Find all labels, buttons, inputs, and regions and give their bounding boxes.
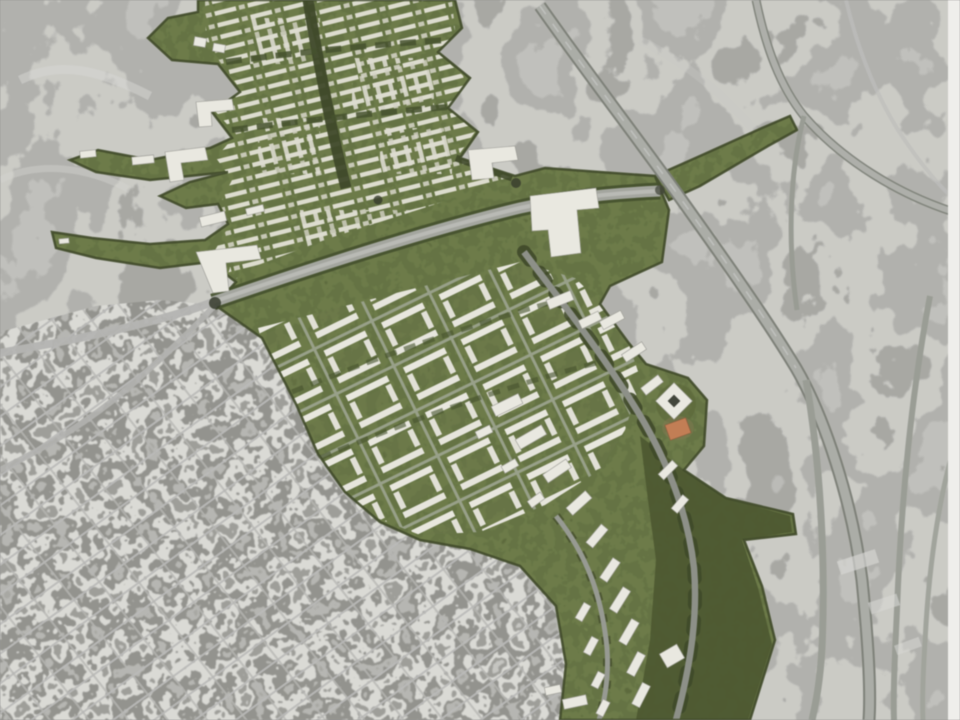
rowhouse-patch [352,58,434,110]
junction-dot [209,297,221,309]
junction-dot [511,178,521,188]
junction-dot [655,185,665,195]
aerial-map [0,0,960,720]
building [212,43,225,53]
right-edge-strip [948,0,960,720]
building [193,37,206,48]
aerial-masterplan-view [0,0,960,720]
building [80,150,97,159]
junction-dot [374,196,383,205]
rowhouse-patch [380,128,452,174]
building [59,238,69,244]
